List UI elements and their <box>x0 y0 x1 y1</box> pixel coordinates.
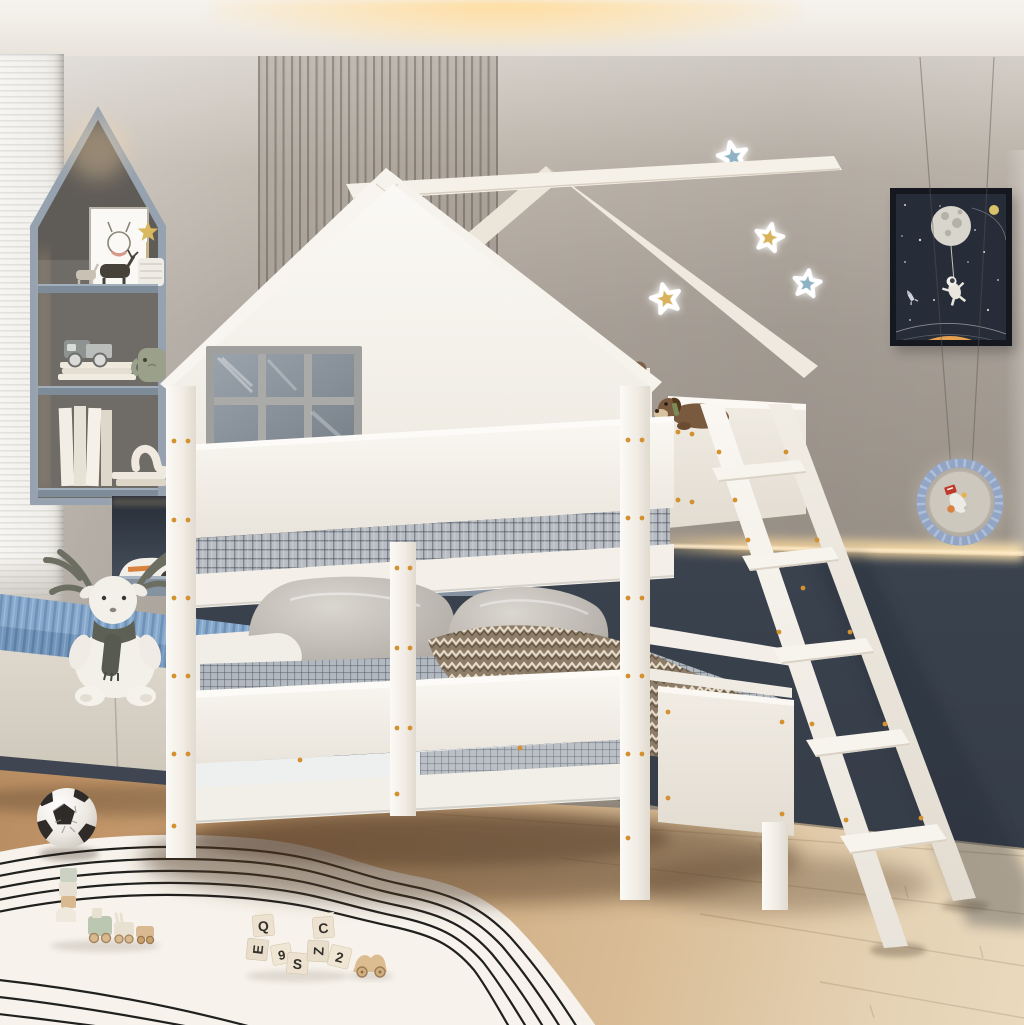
star-decal-yellow-1 <box>753 221 785 252</box>
scene-drawing: Q E 9 S C Z 2 <box>0 0 1024 1025</box>
letter-block: Z <box>307 940 329 962</box>
bed-post <box>390 542 416 816</box>
poster-planet <box>888 336 1012 460</box>
train-car <box>136 926 154 944</box>
letter-block: S <box>286 952 309 975</box>
block-letter: S <box>292 955 303 972</box>
deer-head <box>89 576 137 624</box>
block-letter: Q <box>257 918 269 935</box>
footboard <box>658 690 794 836</box>
window-mullion <box>214 397 354 405</box>
block-letter: E <box>249 944 266 955</box>
storage-basket <box>138 258 164 286</box>
bunk-bed <box>160 156 842 910</box>
star-decal-blue-2 <box>792 269 821 297</box>
space-poster <box>888 188 1016 460</box>
bed-post <box>166 386 196 858</box>
block-letter: Z <box>310 946 326 956</box>
bed-post <box>620 386 650 900</box>
letter-block: E <box>246 938 269 961</box>
poster-small-moon <box>989 205 999 215</box>
upright-books <box>59 406 112 486</box>
house-shelf-niche <box>30 106 166 505</box>
bedroom-scene: Q E 9 S C Z 2 <box>0 0 1024 1025</box>
star-decal-yellow-2 <box>649 281 683 314</box>
block-letter: C <box>318 920 329 937</box>
bed-leg <box>762 822 788 910</box>
